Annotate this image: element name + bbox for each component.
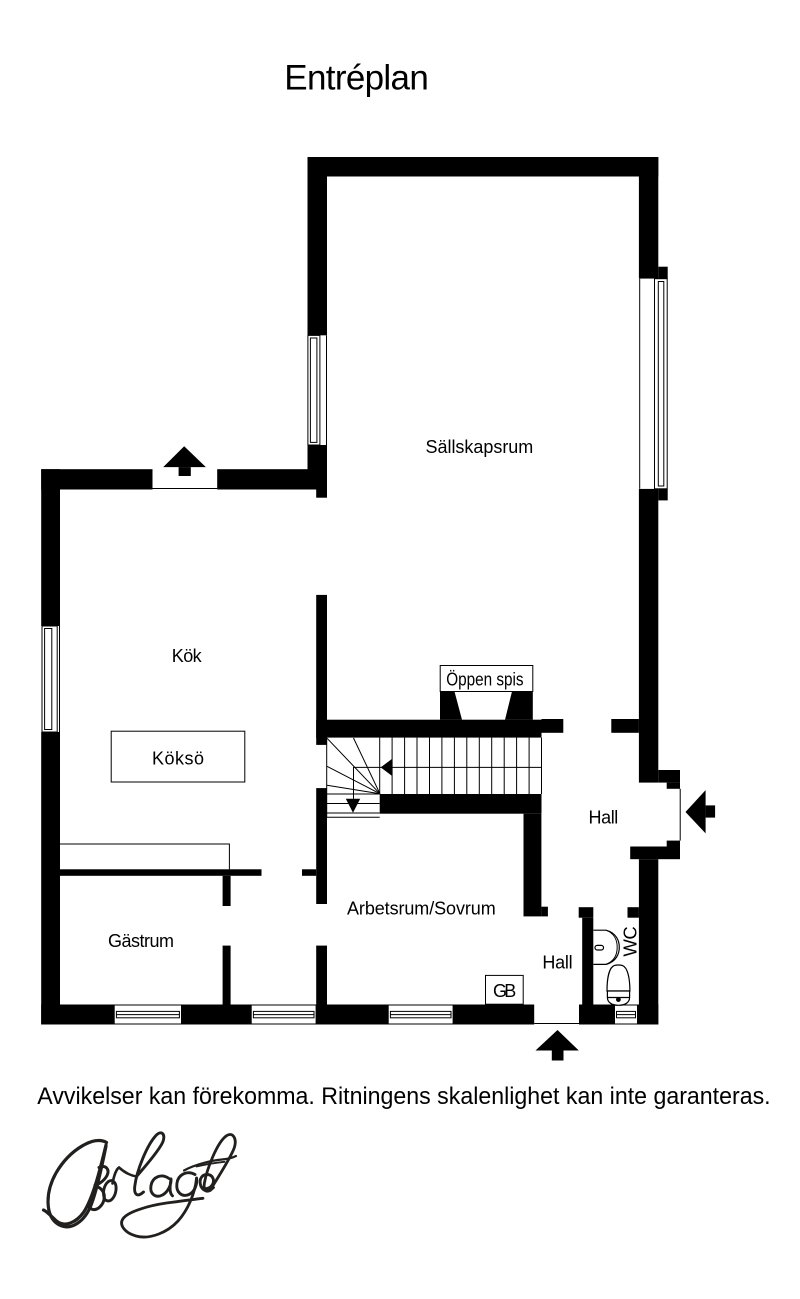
svg-text:GB: GB xyxy=(493,981,516,1001)
svg-text:Gästrum: Gästrum xyxy=(108,931,174,951)
svg-text:Öppen spis: Öppen spis xyxy=(446,669,523,689)
svg-text:Kök: Kök xyxy=(172,646,203,666)
svg-text:WC: WC xyxy=(619,926,640,956)
svg-text:Köksö: Köksö xyxy=(152,749,204,769)
svg-text:Hall: Hall xyxy=(542,953,572,973)
svg-text:Avvikelser kan förekomma. Ritn: Avvikelser kan förekomma. Ritningens ska… xyxy=(37,1083,770,1110)
svg-text:Arbetsrum/Sovrum: Arbetsrum/Sovrum xyxy=(347,899,496,919)
svg-text:Entréplan: Entréplan xyxy=(284,59,429,98)
svg-text:Sällskapsrum: Sällskapsrum xyxy=(426,437,534,457)
svg-text:Hall: Hall xyxy=(589,807,619,827)
